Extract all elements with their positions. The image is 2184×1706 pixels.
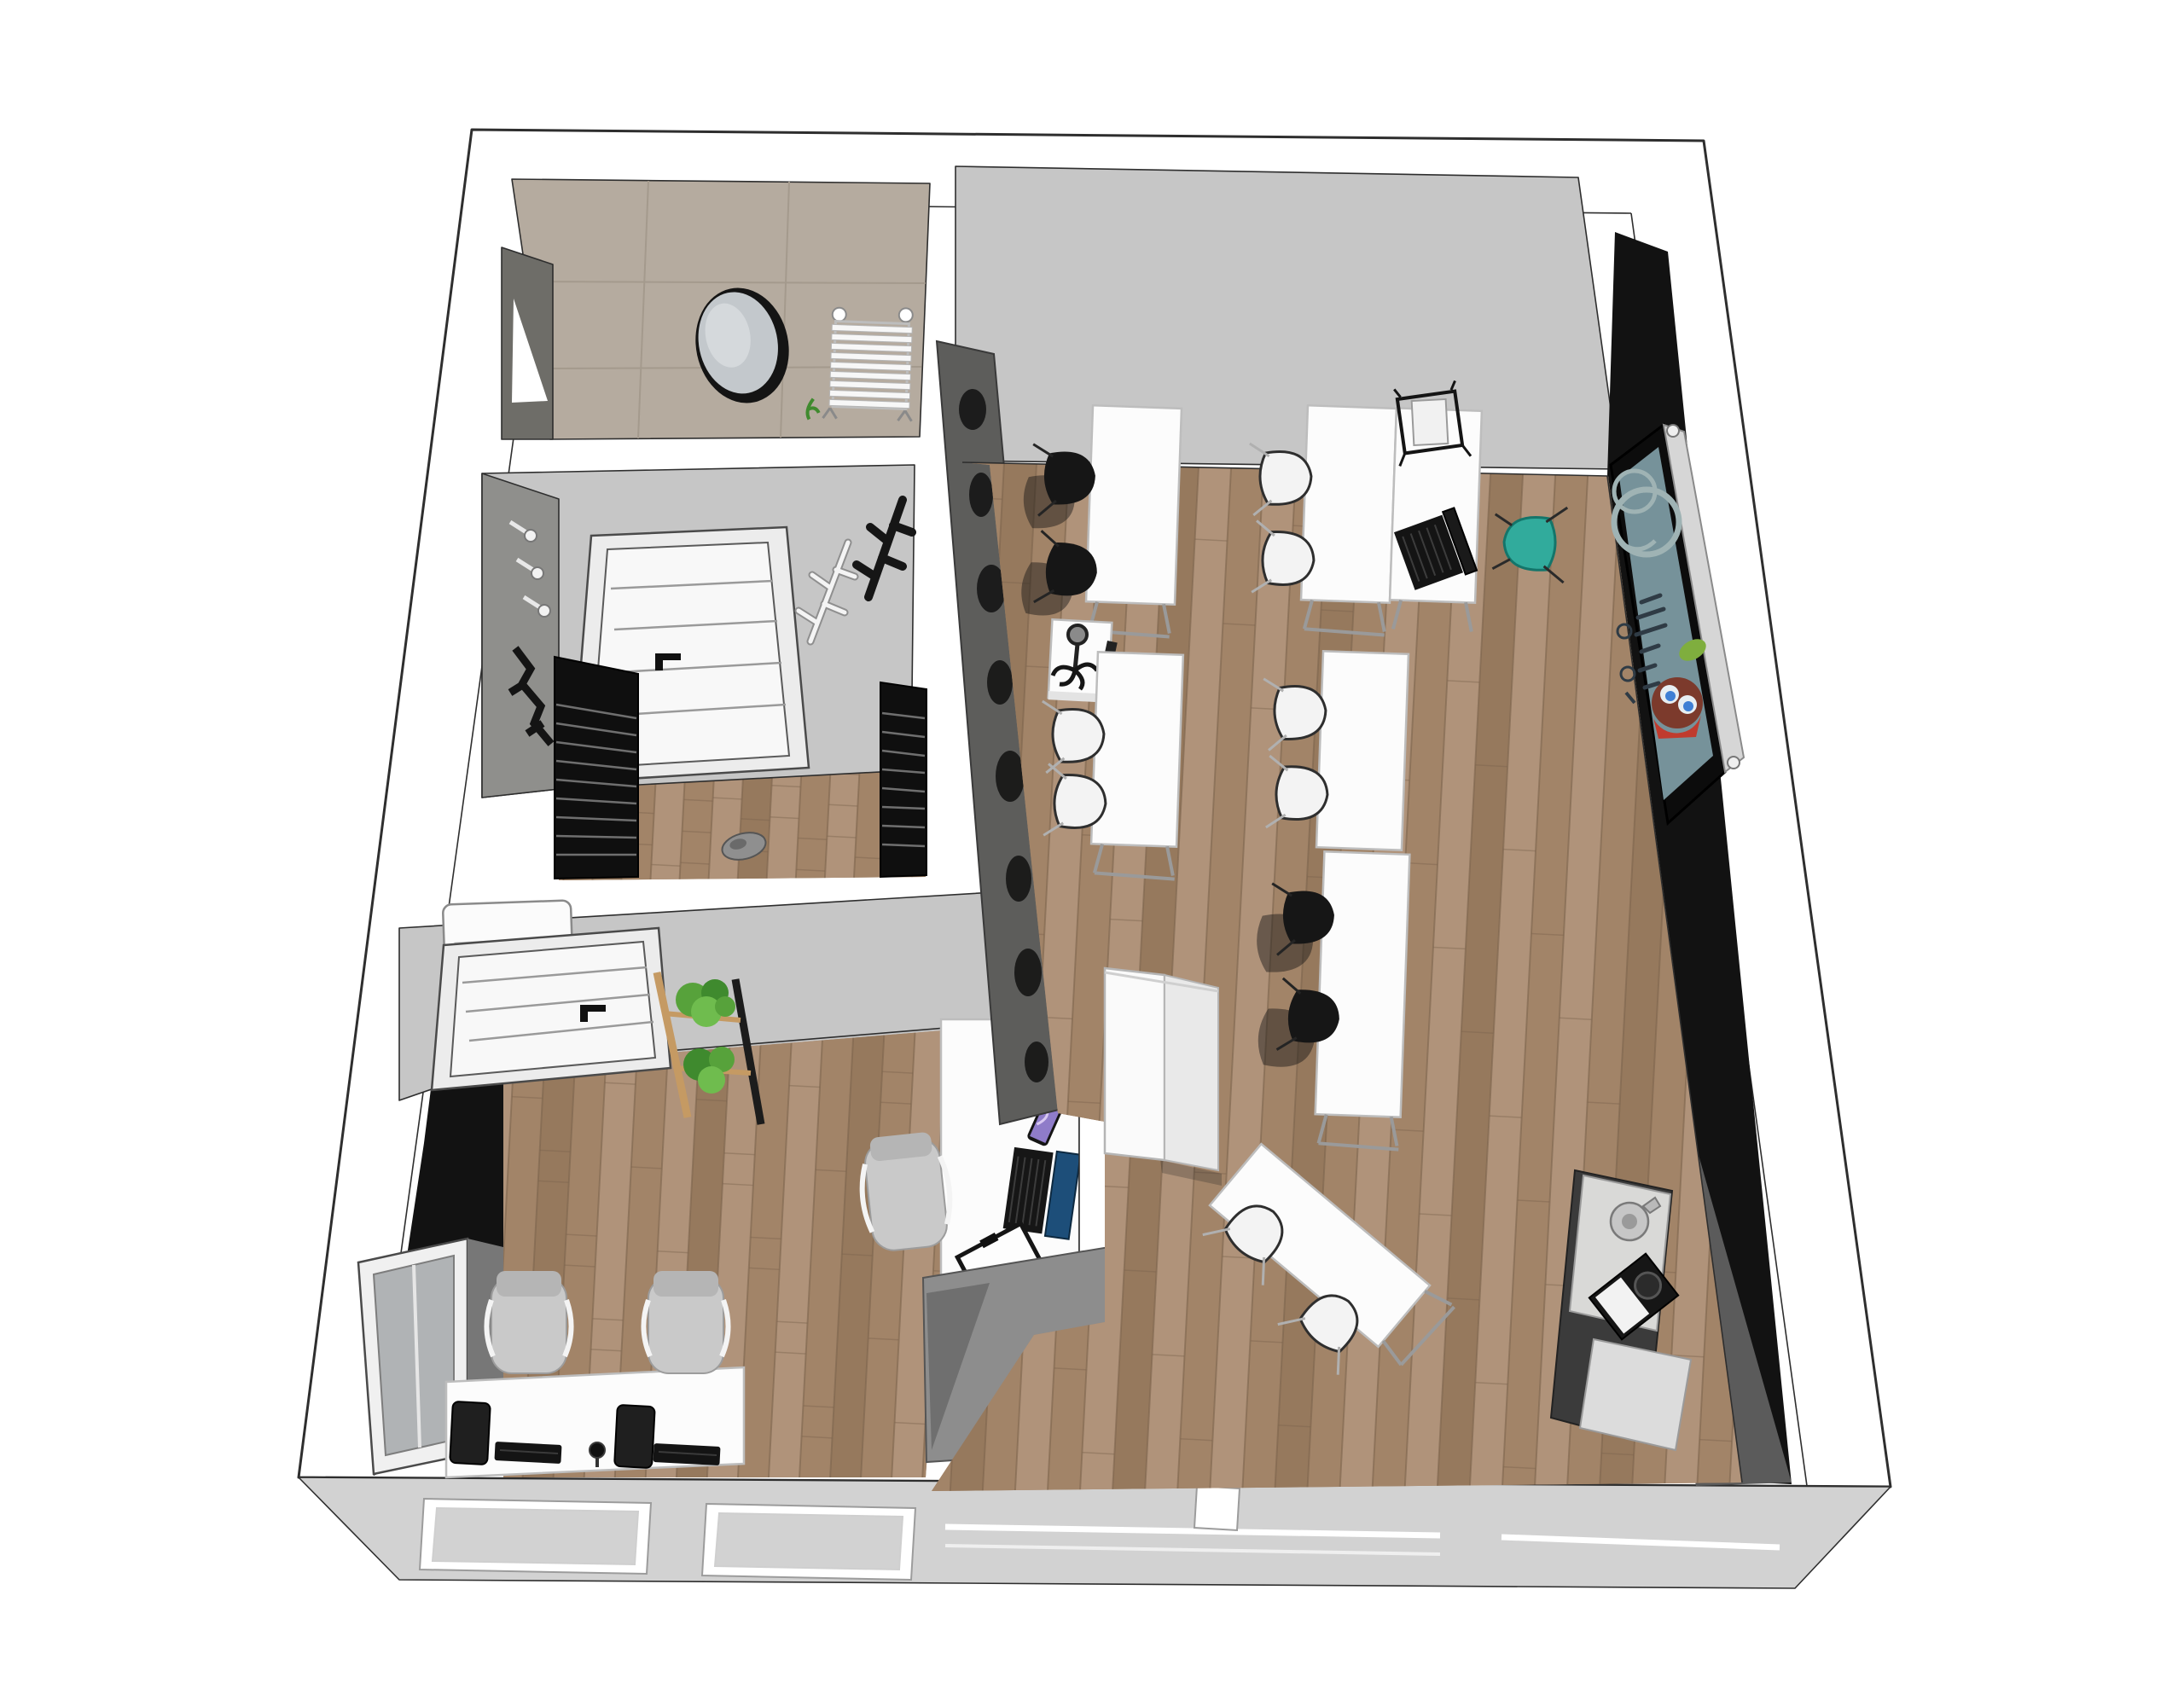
rear-door-slab (1194, 1486, 1240, 1530)
hallway-side-wall (482, 473, 559, 798)
training-table (1090, 652, 1183, 879)
office-chair (486, 1271, 571, 1373)
monitor (450, 1401, 491, 1465)
double-workstation (446, 1367, 744, 1477)
slatted-bench (555, 657, 638, 879)
office-chair (643, 1271, 728, 1373)
classroom-wall (955, 166, 1619, 469)
bathroom (502, 179, 930, 439)
exterior-window (420, 1499, 651, 1574)
training-table (1300, 405, 1397, 635)
exterior-window (702, 1504, 915, 1580)
wardrobe-cabinet (1105, 968, 1222, 1186)
training-room (881, 166, 1819, 1609)
training-table (1085, 405, 1182, 636)
wall-radiator (880, 682, 926, 877)
keyboard (653, 1443, 720, 1465)
floorplan-svg (0, 0, 2184, 1706)
training-table (1316, 651, 1409, 850)
office-door (432, 928, 671, 1090)
keyboard (494, 1442, 561, 1464)
monitor (614, 1405, 655, 1468)
floorplan-render (0, 0, 2184, 1706)
